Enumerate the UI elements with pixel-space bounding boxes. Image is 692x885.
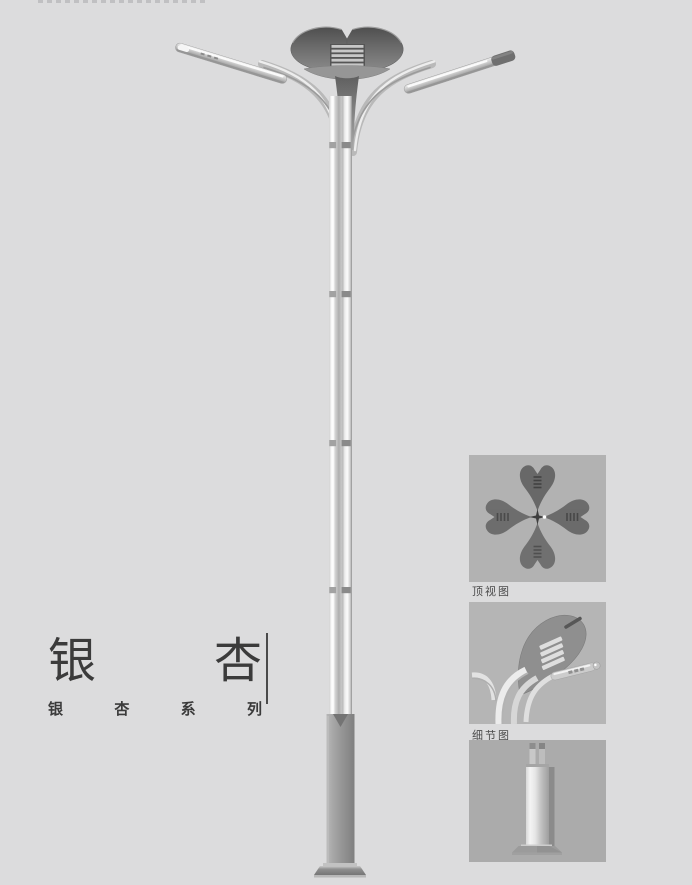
product-name-char-1: 银 — [48, 636, 96, 689]
title-divider-line — [266, 633, 268, 704]
series-char-1: 银 — [48, 698, 63, 719]
catalog-page: 银 杏 银 杏 系 列 — [0, 0, 692, 885]
inset-base-view-panel — [469, 740, 606, 862]
right-luminaire — [403, 49, 517, 95]
top-view-label: 顶视图 — [472, 583, 511, 599]
series-char-3: 系 — [181, 698, 196, 719]
base-plate — [314, 863, 366, 878]
product-name-char-2: 杏 — [214, 636, 262, 689]
detail-view-illustration — [469, 602, 606, 724]
inset-detail-view-panel — [469, 602, 606, 724]
base-detail-plate — [512, 845, 562, 856]
base-column — [327, 714, 355, 866]
series-name: 银 杏 系 列 — [48, 698, 262, 719]
series-char-4: 列 — [247, 698, 262, 719]
base-view-illustration — [469, 740, 606, 862]
inset-top-view-panel — [469, 455, 606, 582]
base-detail-column — [526, 743, 555, 847]
head-collar — [304, 66, 390, 80]
series-char-2: 杏 — [114, 698, 129, 719]
product-name: 银 杏 — [48, 636, 262, 689]
product-title-block: 银 杏 银 杏 系 列 — [48, 636, 262, 719]
lamp-pole — [329, 96, 352, 716]
top-view-illustration — [469, 455, 606, 582]
head-louver-slats — [330, 44, 365, 67]
